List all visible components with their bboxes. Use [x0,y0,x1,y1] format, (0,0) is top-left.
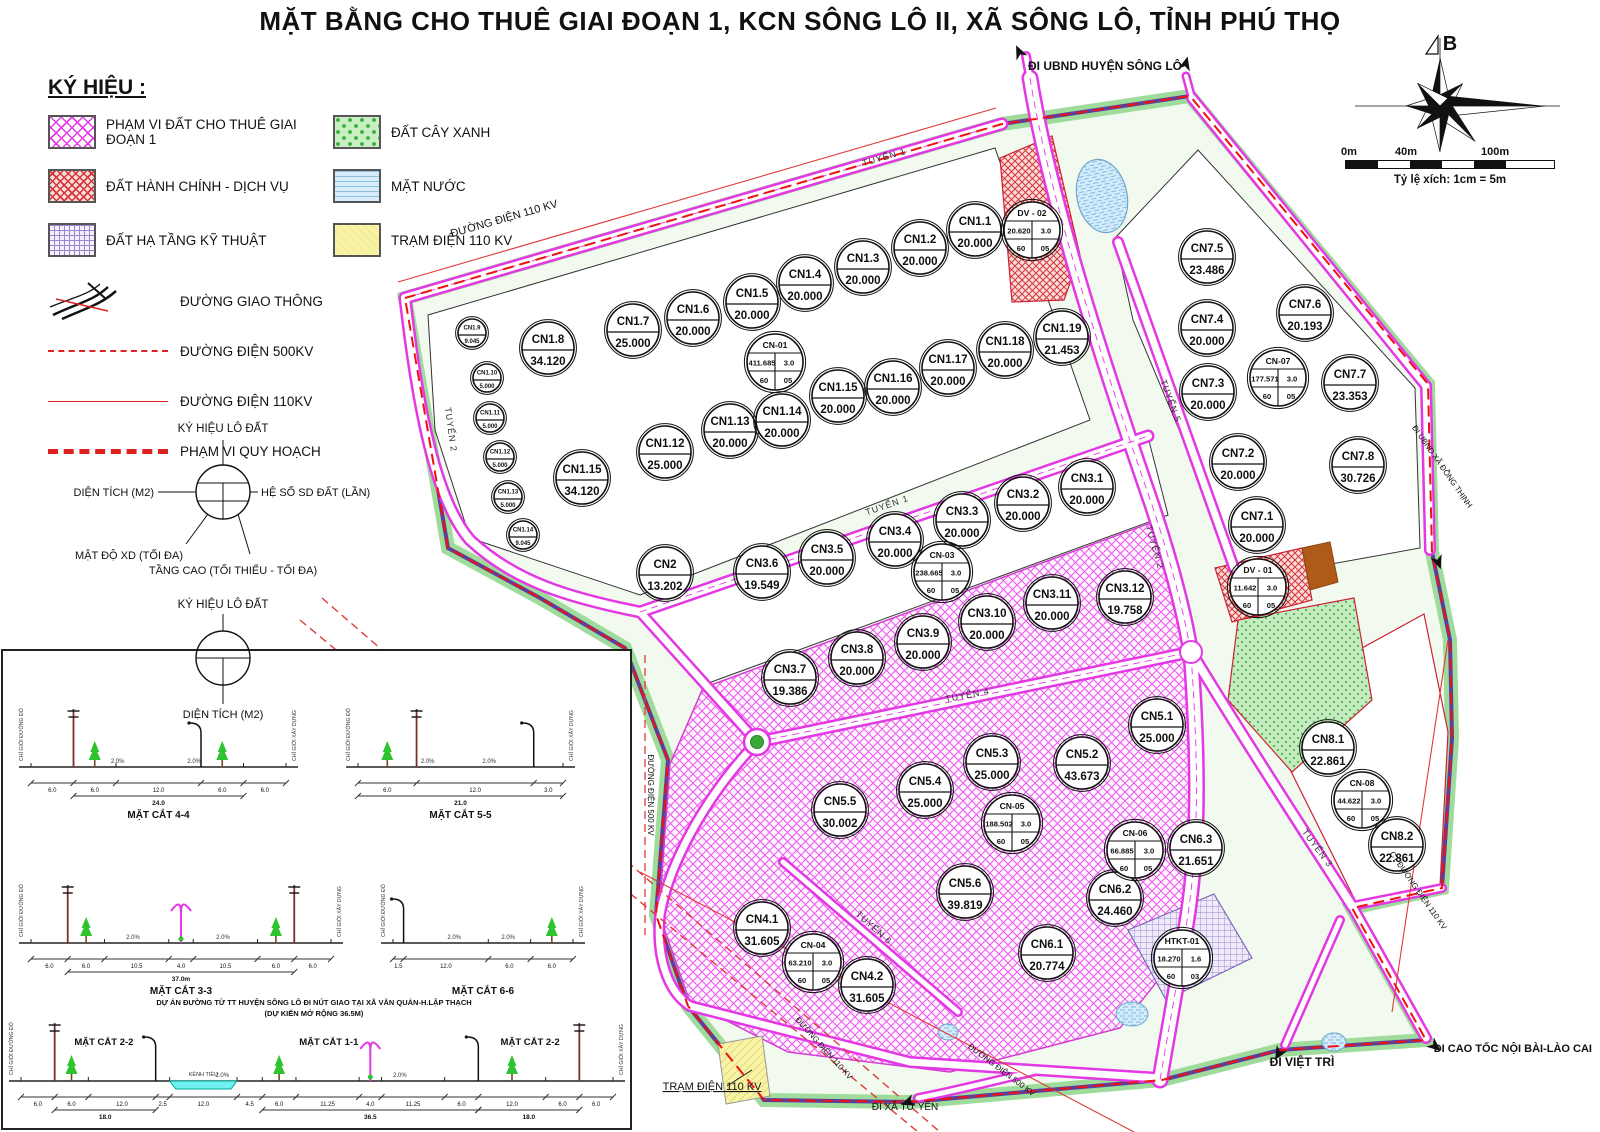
svg-text:23.353: 23.353 [1332,391,1367,403]
legend-item-label: TRẠM ĐIỆN 110 KV [391,233,512,248]
svg-text:3.0: 3.0 [1371,797,1382,806]
svg-text:3.0: 3.0 [822,959,833,968]
svg-text:CN1.6: CN1.6 [677,304,710,316]
lot-CN7.6: CN7.620.193 [1277,285,1334,342]
lot-DV-01: DV - 0111.6423.06005 [1227,556,1288,617]
svg-text:05: 05 [1267,601,1276,610]
svg-text:20.000: 20.000 [1069,495,1104,507]
legend-column-1: PHẠM VI ĐẤT CHO THUÊ GIAI ĐOẠN 1ĐẤT HÀNH… [48,116,328,278]
svg-text:11.25: 11.25 [406,1102,421,1108]
svg-text:3.0: 3.0 [544,788,553,794]
lot-CN3.4: CN3.420.000 [867,512,924,569]
svg-text:20.000: 20.000 [820,404,855,416]
svg-text:CN2: CN2 [653,559,676,571]
svg-text:25.000: 25.000 [615,338,650,350]
zone-station-yellow [718,1036,770,1104]
svg-text:DV - 01: DV - 01 [1243,565,1272,575]
svg-text:CN1.13: CN1.13 [711,416,750,428]
lot-CN7.4: CN7.420.000 [1179,300,1236,357]
svg-text:CN8.1: CN8.1 [1312,734,1345,746]
svg-text:2.0%: 2.0% [447,935,461,941]
svg-text:37.0m: 37.0m [172,976,191,983]
svg-text:CN3.6: CN3.6 [746,558,779,570]
scale-bar: 0m 40m 100m Tỷ lệ xích: 1cm = 5m [1345,146,1555,186]
svg-text:CN1.1: CN1.1 [959,216,992,228]
lot-CN-07: CN-07177.5713.06005 [1247,347,1308,408]
pond [1116,1002,1148,1026]
svg-text:60: 60 [1017,244,1025,253]
lot-CN1.2: CN1.220.000 [892,220,949,277]
svg-text:05: 05 [1144,864,1153,873]
svg-text:6.0: 6.0 [34,1102,43,1108]
svg-text:CN6.3: CN6.3 [1180,834,1213,846]
map-label: ĐI UBND HUYỆN SÔNG LÔ [1028,58,1182,73]
svg-text:CN1.4: CN1.4 [789,269,822,281]
section-label: MẶT CẮT 2-2 [74,1037,133,1048]
svg-text:CN1.18: CN1.18 [986,336,1026,348]
svg-text:CN-04: CN-04 [801,940,826,950]
lot-CN3.6: CN3.619.549 [734,544,791,601]
svg-text:CN5.2: CN5.2 [1066,749,1099,761]
section-label: MẶT CẮT 3-3 [150,984,213,997]
svg-text:60: 60 [1167,972,1175,981]
legend-swatch-water [333,169,381,203]
lot-CN7.1: CN7.120.000 [1229,497,1286,554]
svg-text:12.0: 12.0 [506,1102,518,1108]
svg-text:3.0: 3.0 [1041,227,1052,236]
svg-text:HTKT-01: HTKT-01 [1165,936,1200,946]
svg-text:6.0: 6.0 [558,1102,567,1108]
svg-text:CN-07: CN-07 [1266,356,1291,366]
lot-symbol-area-label: DIỆN TÍCH (M2) [183,708,263,721]
legend-item-label: MẶT NƯỚC [391,179,466,194]
lot-symbol-title: KÝ HIỆU LÔ ĐẤT [178,422,269,435]
lot-CN3.7: CN3.719.386 [762,650,819,707]
svg-text:39.819: 39.819 [947,900,982,912]
svg-text:6.0: 6.0 [308,964,317,970]
svg-text:30.002: 30.002 [822,818,857,830]
svg-text:CN3.12: CN3.12 [1106,583,1145,595]
edge-label: CHỈ GIỚI XÂY DỰNG [578,886,585,937]
svg-text:10.5: 10.5 [131,964,143,970]
lot-symbol-area-label: DIỆN TÍCH (M2) [74,486,154,499]
lot-CN3.5: CN3.520.000 [799,530,856,587]
svg-text:6.0: 6.0 [67,1102,76,1108]
scale-tick: 40m [1395,146,1417,158]
legend-item-green: ĐẤT CÂY XANH [333,116,613,148]
svg-text:18.270: 18.270 [1157,955,1180,964]
lot-CN7.7: CN7.723.353 [1322,355,1379,412]
svg-text:CN1.15: CN1.15 [819,382,859,394]
svg-text:238.665: 238.665 [915,569,943,578]
svg-text:CN7.4: CN7.4 [1191,314,1224,326]
svg-text:6.0: 6.0 [218,788,227,794]
svg-text:60: 60 [927,586,935,595]
svg-text:2.0%: 2.0% [126,935,140,941]
svg-text:24.460: 24.460 [1097,906,1132,918]
lot-CN3.12: CN3.1219.758 [1097,569,1154,626]
svg-text:6.0: 6.0 [48,788,57,794]
section-label: MẶT CẮT 2-2 [501,1037,560,1048]
lot-CN1.17: CN1.1720.000 [920,340,977,397]
lot-CN1.6: CN1.620.000 [665,290,722,347]
svg-text:11.25: 11.25 [320,1102,335,1108]
svg-text:20.193: 20.193 [1287,321,1322,333]
svg-text:20.774: 20.774 [1029,961,1065,973]
svg-text:11.642: 11.642 [1234,584,1257,593]
svg-text:CN7.5: CN7.5 [1191,243,1224,255]
lot-CN7.2: CN7.220.000 [1210,434,1267,491]
svg-text:60: 60 [1120,864,1128,873]
svg-text:CN6.2: CN6.2 [1099,884,1132,896]
lot-CN-05: CN-05188.5023.06005 [981,792,1042,853]
svg-text:6.0: 6.0 [505,964,514,970]
svg-text:2.0%: 2.0% [216,935,230,941]
svg-text:20.000: 20.000 [875,395,910,407]
svg-text:20.000: 20.000 [845,275,880,287]
edge-label: CHỈ GIỚI ĐƯỜNG ĐỎ [18,708,25,761]
svg-text:19.386: 19.386 [772,686,807,698]
svg-text:6.0: 6.0 [275,1102,284,1108]
lot-CN3.10: CN3.1020.000 [959,594,1016,651]
svg-text:CN3.4: CN3.4 [879,526,912,538]
lot-CN7.5: CN7.523.486 [1179,229,1236,286]
lot-CN1.1: CN1.120.000 [947,202,1004,259]
legend-item-label: ĐẤT CÂY XANH [391,125,490,140]
svg-text:20.620: 20.620 [1007,227,1030,236]
svg-text:177.571: 177.571 [1251,375,1279,384]
svg-text:CN1.12: CN1.12 [646,438,685,450]
edge-label: CHỈ GIỚI ĐƯỜNG ĐỎ [8,1022,15,1075]
svg-text:12.0: 12.0 [153,788,165,794]
lot-CN4.2: CN4.231.605 [839,957,896,1014]
svg-text:CN6.1: CN6.1 [1031,939,1064,951]
lot-CN-01: CN-01411.6853.06005 [744,331,805,392]
lot-CN1.13: CN1.1320.000 [702,402,759,459]
svg-text:18.0: 18.0 [99,1114,112,1121]
svg-text:6.0: 6.0 [548,964,557,970]
svg-text:CN5.4: CN5.4 [909,776,942,788]
svg-text:20.000: 20.000 [675,326,710,338]
legend-item-label: PHẠM VI ĐẤT CHO THUÊ GIAI ĐOẠN 1 [106,117,328,147]
svg-text:20.000: 20.000 [930,376,965,388]
svg-text:3.0: 3.0 [1144,847,1155,856]
lot-CN5.3: CN5.325.000 [964,734,1021,791]
lot-CN1.14: CN1.1420.000 [754,392,811,449]
svg-text:CN1.7: CN1.7 [617,316,650,328]
svg-text:25.000: 25.000 [974,770,1009,782]
lot-CN4.1: CN4.131.605 [734,900,791,957]
svg-text:12.0: 12.0 [116,1102,128,1108]
svg-text:4.0: 4.0 [366,1102,375,1108]
svg-text:20.000: 20.000 [944,528,979,540]
svg-text:20.000: 20.000 [1220,470,1255,482]
compass-rose: B [1330,28,1570,158]
svg-text:20.000: 20.000 [902,256,937,268]
svg-text:CN1.19: CN1.19 [1043,323,1082,335]
pond [1322,1033,1346,1051]
lot-CN6.1: CN6.120.774 [1019,925,1076,982]
svg-text:05: 05 [951,586,960,595]
svg-text:188.502: 188.502 [985,820,1012,829]
lot-CN-04: CN-0463.2103.06005 [782,931,843,992]
svg-text:CN1.14: CN1.14 [763,406,803,418]
svg-text:411.685: 411.685 [748,359,776,368]
legend-item-power: TRẠM ĐIỆN 110 KV [333,224,613,256]
svg-text:20.000: 20.000 [1190,400,1225,412]
lot-CN5.5: CN5.530.002 [812,782,869,839]
svg-text:12.0: 12.0 [469,788,481,794]
svg-text:1.5: 1.5 [394,964,403,970]
svg-text:20.000: 20.000 [712,438,747,450]
svg-text:30.726: 30.726 [1340,473,1375,485]
svg-text:19.758: 19.758 [1107,605,1143,617]
svg-text:24.0: 24.0 [152,800,165,807]
svg-text:CN4.2: CN4.2 [851,971,884,983]
svg-text:DV - 02: DV - 02 [1017,208,1046,218]
svg-text:2.0%: 2.0% [187,759,201,765]
lot-CN-08: CN-0844.6223.06005 [1331,769,1392,830]
svg-text:05: 05 [822,976,831,985]
edge-label: CHỈ GIỚI ĐƯỜNG ĐỎ [380,884,387,937]
edge-label: CHỈ GIỚI XÂY DỰNG [336,886,343,937]
lot-CN5.6: CN5.639.819 [937,864,994,921]
lot-CN1.12: CN1.1225.000 [637,424,694,481]
canal-label: KÊNH TIÊU [189,1070,218,1078]
svg-text:CN3.1: CN3.1 [1071,473,1104,485]
legend-swatch-power [333,223,381,257]
lot-CN7.8: CN7.830.726 [1330,437,1387,494]
svg-text:6.0: 6.0 [272,964,281,970]
legend-swatch-phase1 [48,115,96,149]
lot-CN3.3: CN3.320.000 [934,492,991,549]
lot-CN5.2: CN5.243.673 [1054,735,1111,792]
lot-CN1.4: CN1.420.000 [777,255,834,312]
svg-text:CN7.3: CN7.3 [1192,378,1225,390]
svg-text:20.000: 20.000 [877,548,912,560]
legend-item-label: ĐƯỜNG ĐIỆN 500KV [180,344,313,359]
legend-item-label: ĐẤT HÀNH CHÍNH - DỊCH VỤ [106,179,289,194]
svg-text:6.0: 6.0 [592,1102,601,1108]
svg-text:18.0: 18.0 [523,1114,536,1121]
svg-text:05: 05 [1041,244,1050,253]
svg-text:3.0: 3.0 [1287,375,1298,384]
svg-text:19.549: 19.549 [744,580,779,592]
svg-text:12.0: 12.0 [440,964,452,970]
svg-text:3.0: 3.0 [951,569,962,578]
roundabout [1180,641,1202,663]
legend-swatch-admin [48,169,96,203]
svg-text:CN4.1: CN4.1 [746,914,779,926]
svg-text:6.0: 6.0 [457,1102,466,1108]
lot-CN3.2: CN3.220.000 [995,475,1052,532]
svg-text:44.622: 44.622 [1337,797,1360,806]
legend-item-label: ĐƯỜNG GIAO THÔNG [180,294,323,309]
sections-note: (DỰ KIẾN MỞ RỘNG 36.5M) [265,1008,364,1018]
svg-text:21.453: 21.453 [1044,345,1079,357]
lot-CN3.11: CN3.1120.000 [1024,575,1081,632]
legend-heading: KÝ HIỆU : [48,76,613,100]
edge-label: CHỈ GIỚI ĐƯỜNG ĐỎ [18,884,25,937]
svg-text:CN3.3: CN3.3 [946,506,979,518]
lot-symbol-title: KÝ HIỆU LÔ ĐẤT [178,598,269,611]
svg-text:25.000: 25.000 [647,460,682,472]
svg-text:05: 05 [1021,837,1030,846]
svg-text:20.000: 20.000 [969,630,1004,642]
lot-CN3.9: CN3.920.000 [895,614,952,671]
lot-CN6.3: CN6.321.651 [1168,820,1225,877]
svg-text:2.0%: 2.0% [215,1073,229,1079]
lot-CN3.1: CN3.120.000 [1059,459,1116,516]
lot-CN1.16: CN1.1620.000 [865,359,922,416]
svg-text:2.0%: 2.0% [501,935,515,941]
svg-text:60: 60 [1263,392,1271,401]
lot-CN1.19: CN1.1921.453 [1034,309,1091,366]
map-label: ĐƯỜNG ĐIỆN 500 KV [646,754,655,836]
svg-text:2.0%: 2.0% [421,759,435,765]
svg-text:6.0: 6.0 [91,788,100,794]
scale-caption: Tỷ lệ xích: 1cm = 5m [1345,174,1555,186]
map-label: ĐI CAO TỐC NỘI BÀI-LÀO CAI [1434,1041,1592,1055]
lot-CN1.5: CN1.520.000 [724,274,781,331]
svg-text:CN3.7: CN3.7 [774,664,807,676]
sections-note: DỰ ÁN ĐƯỜNG TỪ TT HUYỆN SÔNG LÔ ĐI NÚT G… [156,998,471,1007]
svg-text:CN1.2: CN1.2 [904,234,937,246]
svg-text:6.0: 6.0 [45,964,54,970]
svg-text:66.885: 66.885 [1110,847,1134,856]
svg-text:6.0: 6.0 [261,788,270,794]
legend: KÝ HIỆU : PHẠM VI ĐẤT CHO THUÊ GIAI ĐOẠN… [48,76,613,726]
legend-line-road: ĐƯỜNG GIAO THÔNG [48,288,348,314]
lot-DV-02: DV - 0220.6203.06005 [1001,199,1062,260]
svg-text:CN1.16: CN1.16 [874,373,913,385]
svg-text:CN7.8: CN7.8 [1342,451,1375,463]
svg-text:2.0%: 2.0% [393,1073,407,1079]
svg-text:CN7.6: CN7.6 [1289,299,1322,311]
svg-text:12.0: 12.0 [198,1102,210,1108]
svg-text:13.202: 13.202 [647,581,682,593]
legend-item-phase1: PHẠM VI ĐẤT CHO THUÊ GIAI ĐOẠN 1 [48,116,328,148]
svg-text:23.486: 23.486 [1189,265,1224,277]
svg-text:43.673: 43.673 [1064,771,1099,783]
svg-text:21.651: 21.651 [1178,856,1214,868]
svg-text:60: 60 [798,976,806,985]
lot-CN1.18: CN1.1820.000 [977,322,1034,379]
svg-text:4.0: 4.0 [177,964,186,970]
road-symbol-icon [48,281,168,321]
section-label: MẶT CẮT 1-1 [299,1037,359,1048]
lot-CN7.3: CN7.320.000 [1180,364,1237,421]
svg-text:31.605: 31.605 [744,936,780,948]
svg-text:05: 05 [1287,392,1296,401]
section-label: MẶT CẮT 5-5 [429,808,492,821]
lot-CN-03: CN-03238.6653.06005 [911,541,972,602]
scale-tick: 100m [1481,146,1509,158]
lot-CN2: CN213.202 [637,545,694,602]
lot-CN1.3: CN1.320.000 [835,239,892,296]
svg-text:CN3.2: CN3.2 [1007,489,1040,501]
lot-CN1.15: CN1.1520.000 [810,368,867,425]
svg-text:CN3.9: CN3.9 [907,628,940,640]
legend-line-e500: ĐƯỜNG ĐIỆN 500KV [48,338,348,364]
lot-CN5.1: CN5.125.000 [1129,697,1186,754]
legend-line-swatch-e500 [48,350,168,352]
svg-text:63.210: 63.210 [788,959,811,968]
svg-text:10.5: 10.5 [220,964,232,970]
svg-text:21.0: 21.0 [454,800,467,807]
svg-text:60: 60 [997,837,1005,846]
svg-text:20.000: 20.000 [1005,511,1040,523]
svg-text:60: 60 [760,376,768,385]
svg-text:31.605: 31.605 [849,993,885,1005]
svg-text:20.000: 20.000 [764,428,799,440]
section-label: MẶT CẮT 6-6 [452,984,515,997]
svg-text:60: 60 [1243,601,1251,610]
svg-text:1.6: 1.6 [1191,955,1202,964]
svg-text:20.000: 20.000 [1034,611,1069,623]
legend-item-htkt: ĐẤT HẠ TẦNG KỸ THUẬT [48,224,328,256]
section-label: MẶT CẮT 4-4 [127,808,190,821]
svg-text:20.000: 20.000 [957,238,992,250]
svg-text:2.5: 2.5 [159,1102,168,1108]
svg-text:CN3.11: CN3.11 [1033,589,1072,601]
legend-item-water: MẶT NƯỚC [333,170,613,202]
svg-text:6.0: 6.0 [82,964,91,970]
legend-swatch-green [333,115,381,149]
site-plan-page: CN1.834.120CN1.725.000CN1.620.000CN1.520… [0,0,1600,1132]
svg-text:CN3.5: CN3.5 [811,544,844,556]
svg-text:20.000: 20.000 [1239,533,1274,545]
lot-CN3.8: CN3.820.000 [829,630,886,687]
legend-line-swatch-e110 [48,401,168,402]
svg-text:CN-05: CN-05 [1000,801,1025,811]
svg-text:CN-01: CN-01 [763,340,788,350]
svg-text:CN3.10: CN3.10 [968,608,1007,620]
svg-text:36.5: 36.5 [364,1114,377,1121]
scale-bar-segments [1345,160,1555,169]
svg-text:20.000: 20.000 [839,666,874,678]
svg-text:CN5.3: CN5.3 [976,748,1009,760]
svg-text:CN-03: CN-03 [930,550,955,560]
svg-text:CN-06: CN-06 [1123,828,1148,838]
lot-HTKT-01: HTKT-0118.2701.66003 [1151,927,1212,988]
svg-text:CN7.2: CN7.2 [1222,448,1255,460]
lot-symbol-density-label: MẬT ĐỘ XD (TỐI ĐA) [75,548,183,562]
lot-CN1.7: CN1.725.000 [605,302,662,359]
svg-text:CN3.8: CN3.8 [841,644,874,656]
svg-text:20.000: 20.000 [1189,336,1224,348]
svg-text:60: 60 [1347,814,1355,823]
svg-text:25.000: 25.000 [907,798,942,810]
lot-symbol-far-label: HỆ SỐ SD ĐẤT (LẦN) [261,485,370,499]
svg-text:20.000: 20.000 [809,566,844,578]
svg-text:3.0: 3.0 [1267,584,1278,593]
svg-text:CN-08: CN-08 [1350,778,1375,788]
svg-text:CN1.5: CN1.5 [736,288,769,300]
svg-text:CN1.17: CN1.17 [929,354,968,366]
svg-text:20.000: 20.000 [787,291,822,303]
legend-item-admin: ĐẤT HÀNH CHÍNH - DỊCH VỤ [48,170,328,202]
legend-column-2: ĐẤT CÂY XANHMẶT NƯỚCTRẠM ĐIỆN 110 KV [333,116,613,278]
svg-text:25.000: 25.000 [1139,733,1174,745]
svg-text:6.0: 6.0 [383,788,392,794]
lot-CN-06: CN-0666.8853.06005 [1104,819,1165,880]
lot-symbol-diagram-full: KÝ HIỆU LÔ ĐẤT DIỆN TÍCH (M2) HỆ SỐ SD Đ… [58,404,388,589]
svg-text:CN5.6: CN5.6 [949,878,982,890]
svg-text:20.000: 20.000 [905,650,940,662]
svg-text:CN5.1: CN5.1 [1141,711,1174,723]
svg-text:CN7.7: CN7.7 [1334,369,1367,381]
